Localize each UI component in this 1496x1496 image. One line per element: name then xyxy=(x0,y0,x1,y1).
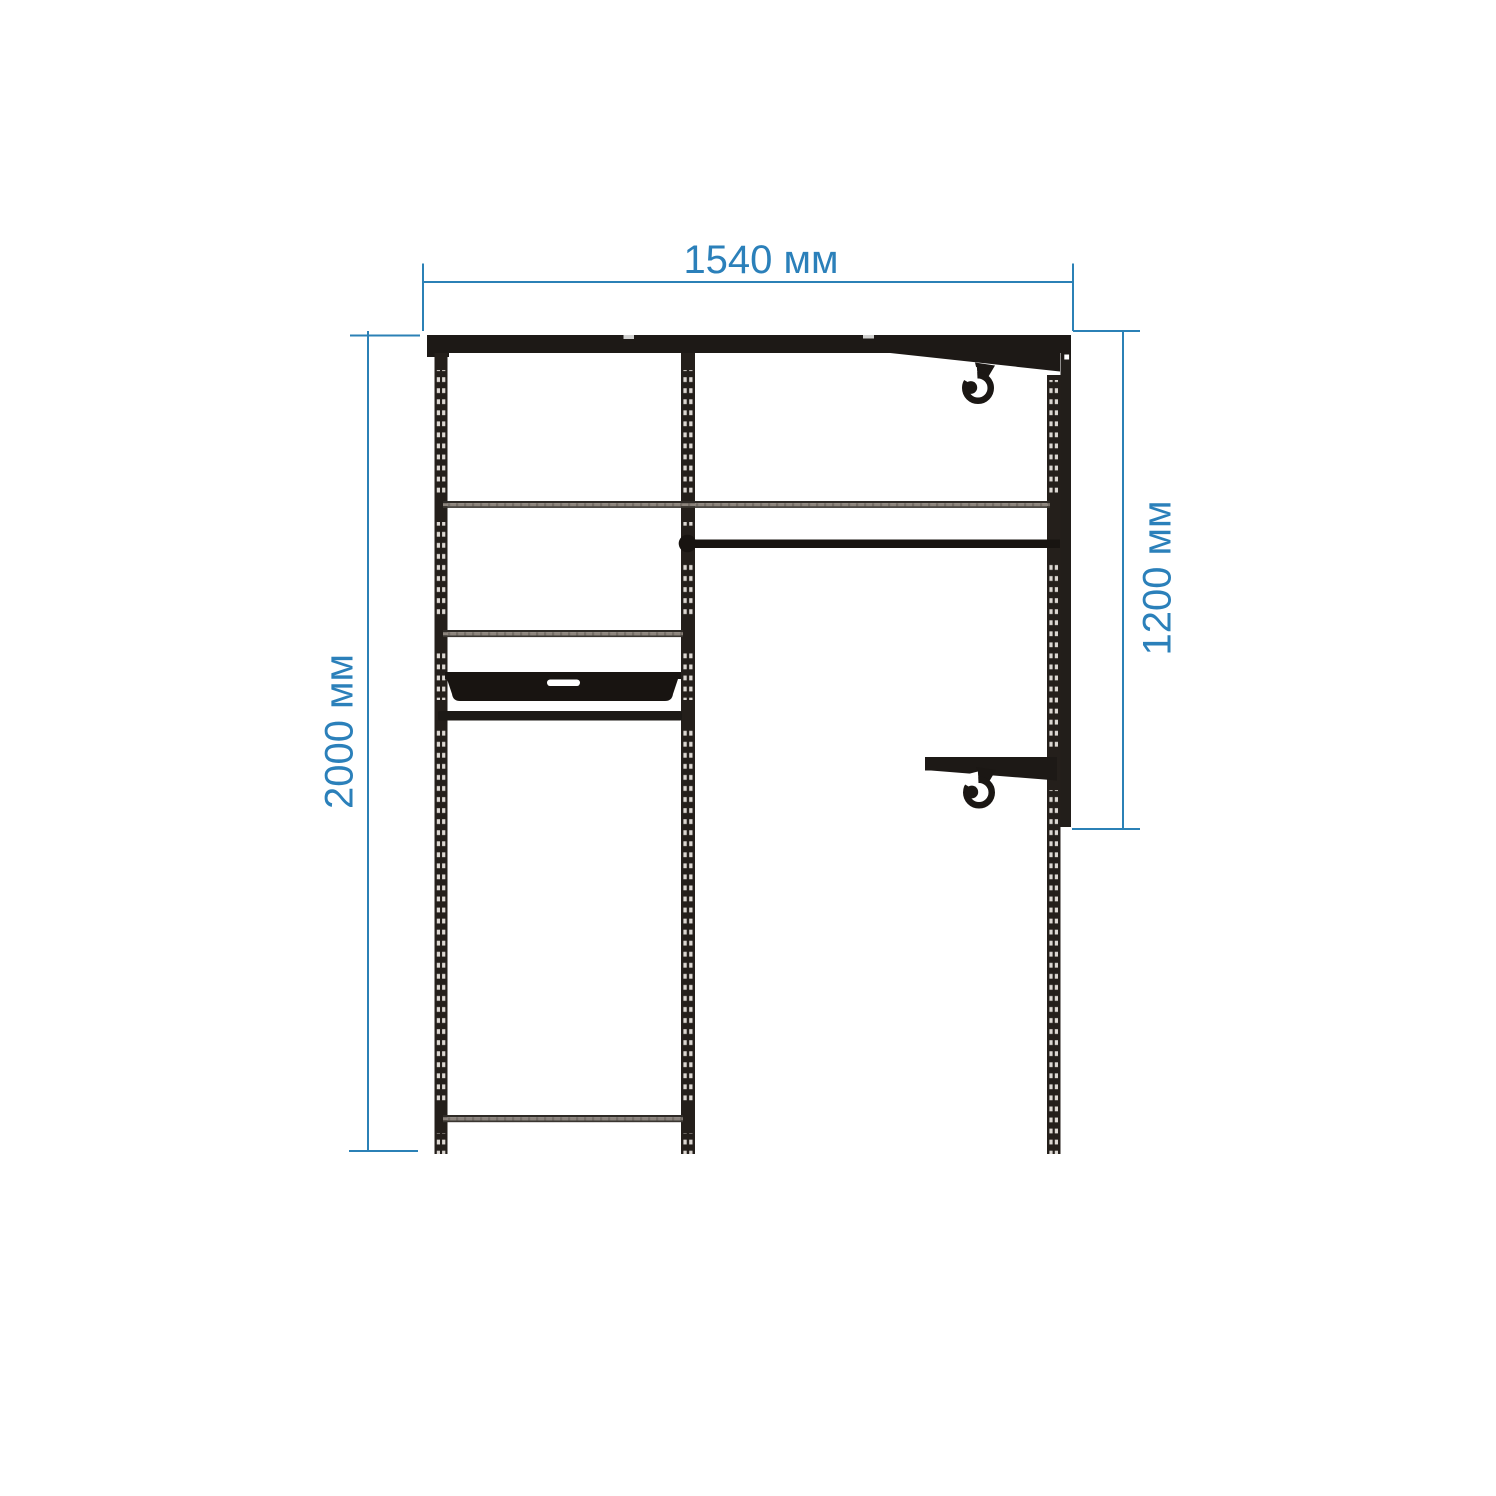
svg-text:2000 мм: 2000 мм xyxy=(318,654,362,809)
svg-text:1200 мм: 1200 мм xyxy=(1136,500,1180,655)
svg-text:1540 мм: 1540 мм xyxy=(683,238,838,282)
